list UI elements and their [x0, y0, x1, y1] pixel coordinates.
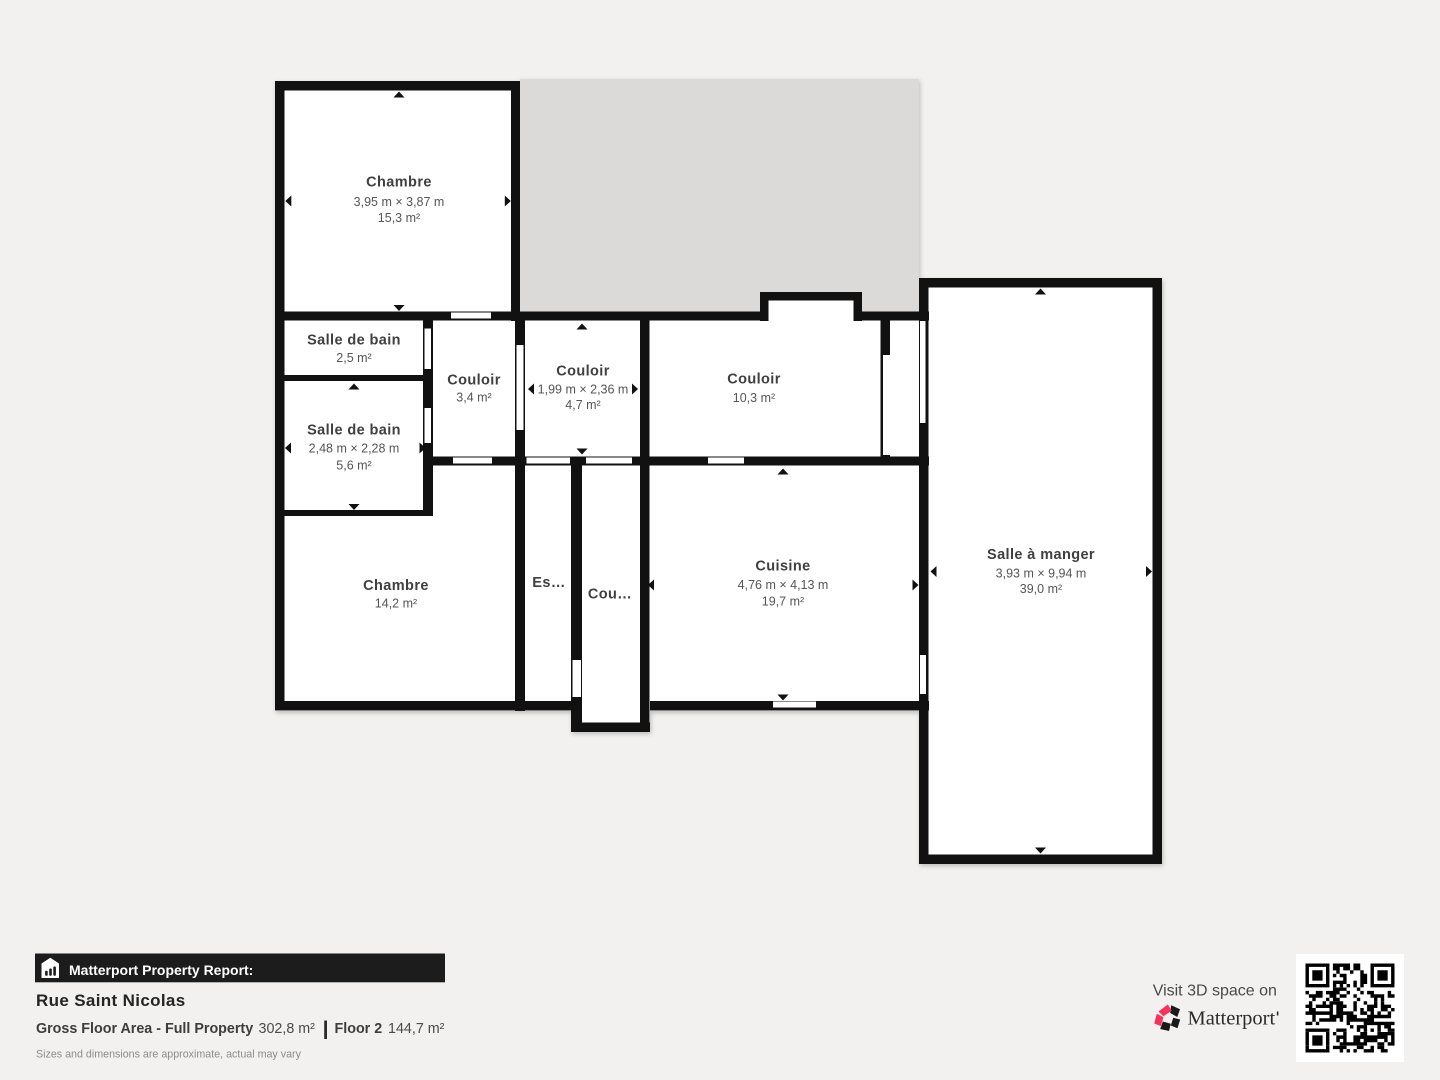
svg-text:Es…: Es…	[532, 575, 565, 591]
svg-text:Chambre: Chambre	[363, 578, 429, 594]
svg-text:15,3 m²: 15,3 m²	[378, 211, 420, 225]
svg-text:1,99 m × 2,36 m: 1,99 m × 2,36 m	[538, 383, 629, 397]
svg-text:4,76 m × 4,13 m: 4,76 m × 4,13 m	[738, 578, 829, 592]
svg-text:3,95 m × 3,87 m: 3,95 m × 3,87 m	[354, 195, 445, 209]
svg-text:19,7 m²: 19,7 m²	[762, 595, 804, 609]
svg-text:Salle de bain: Salle de bain	[307, 423, 401, 439]
svg-text:39,0 m²: 39,0 m²	[1020, 582, 1062, 596]
svg-text:Chambre: Chambre	[366, 175, 432, 191]
svg-text:Rue Saint Nicolas: Rue Saint Nicolas	[36, 991, 186, 1010]
svg-text:5,6 m²: 5,6 m²	[336, 459, 371, 473]
svg-text:Visit 3D space on: Visit 3D space on	[1153, 983, 1277, 1000]
svg-text:Matterport Property Report:: Matterport Property Report:	[69, 962, 253, 978]
svg-text:Matterport: Matterport	[1188, 1008, 1276, 1030]
svg-text:4,7 m²: 4,7 m²	[565, 398, 600, 412]
svg-text:144,7 m²: 144,7 m²	[388, 1021, 445, 1037]
svg-text:Couloir: Couloir	[556, 364, 610, 380]
svg-text:Couloir: Couloir	[447, 373, 501, 389]
svg-text:2,48 m × 2,28 m: 2,48 m × 2,28 m	[309, 442, 400, 456]
svg-text:Salle à manger: Salle à manger	[987, 547, 1095, 563]
svg-text:10,3 m²: 10,3 m²	[733, 391, 775, 405]
svg-text:Cou…: Cou…	[588, 587, 632, 603]
svg-text:Gross Floor Area - Full Proper: Gross Floor Area - Full Property	[36, 1021, 253, 1037]
svg-text:14,2 m²: 14,2 m²	[375, 597, 417, 611]
svg-text:Cuisine: Cuisine	[755, 559, 810, 575]
svg-text:2,5 m²: 2,5 m²	[336, 351, 371, 365]
svg-text:Couloir: Couloir	[727, 372, 781, 388]
svg-text:Floor 2: Floor 2	[335, 1021, 383, 1037]
svg-text:302,8 m²: 302,8 m²	[259, 1021, 316, 1037]
svg-text:3,4 m²: 3,4 m²	[456, 391, 491, 405]
svg-text:Salle de bain: Salle de bain	[307, 333, 401, 349]
svg-text:Sizes and dimensions are appro: Sizes and dimensions are approximate, ac…	[36, 1049, 302, 1061]
svg-text:3,93 m × 9,94 m: 3,93 m × 9,94 m	[996, 567, 1087, 581]
